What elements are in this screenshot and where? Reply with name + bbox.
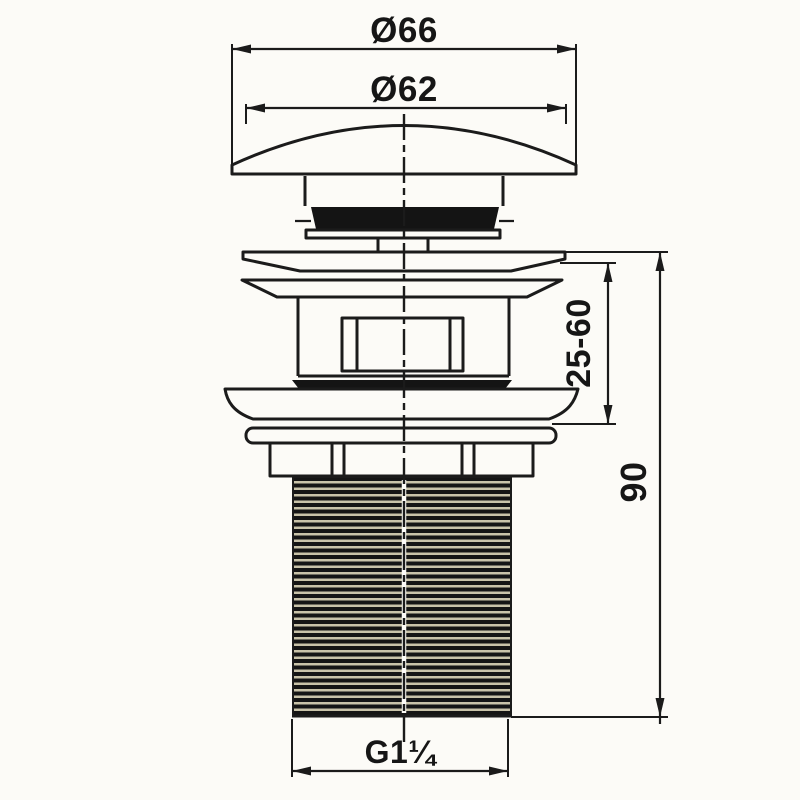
dim-clamp-arrow-bottom <box>604 405 613 424</box>
dim-thread-arrow-right <box>489 767 508 776</box>
dim-thread-arrow-left <box>292 767 311 776</box>
dim66-arrow-left <box>232 45 251 54</box>
dim66-label: Ø66 <box>370 11 438 50</box>
dim-clamp-arrow-top <box>604 263 613 282</box>
dim-height-arrow-bottom <box>656 698 665 717</box>
overflow-slot <box>342 318 463 371</box>
dim-thread-label: G1¼ <box>365 734 438 770</box>
dim-clamp-label: 25-60 <box>560 298 598 387</box>
dim66-arrow-right <box>557 45 576 54</box>
backnut <box>270 443 533 476</box>
dim-height-label: 90 <box>613 461 654 502</box>
dim62-arrow-right <box>547 104 566 113</box>
dimension-cap-top: Ø62 <box>246 70 566 124</box>
dimension-thread-size: G1¼ <box>292 719 508 777</box>
drawing-canvas: Ø66 Ø62 25-60 90 <box>0 0 800 800</box>
dim62-label: Ø62 <box>370 70 438 109</box>
dim62-arrow-left <box>246 104 265 113</box>
technical-drawing: Ø66 Ø62 25-60 90 <box>0 0 800 800</box>
collar-ring <box>246 428 556 443</box>
bottom-flange <box>225 389 578 419</box>
fixture <box>225 114 578 744</box>
dim-height-arrow-top <box>656 252 665 271</box>
second-flange <box>242 280 562 297</box>
